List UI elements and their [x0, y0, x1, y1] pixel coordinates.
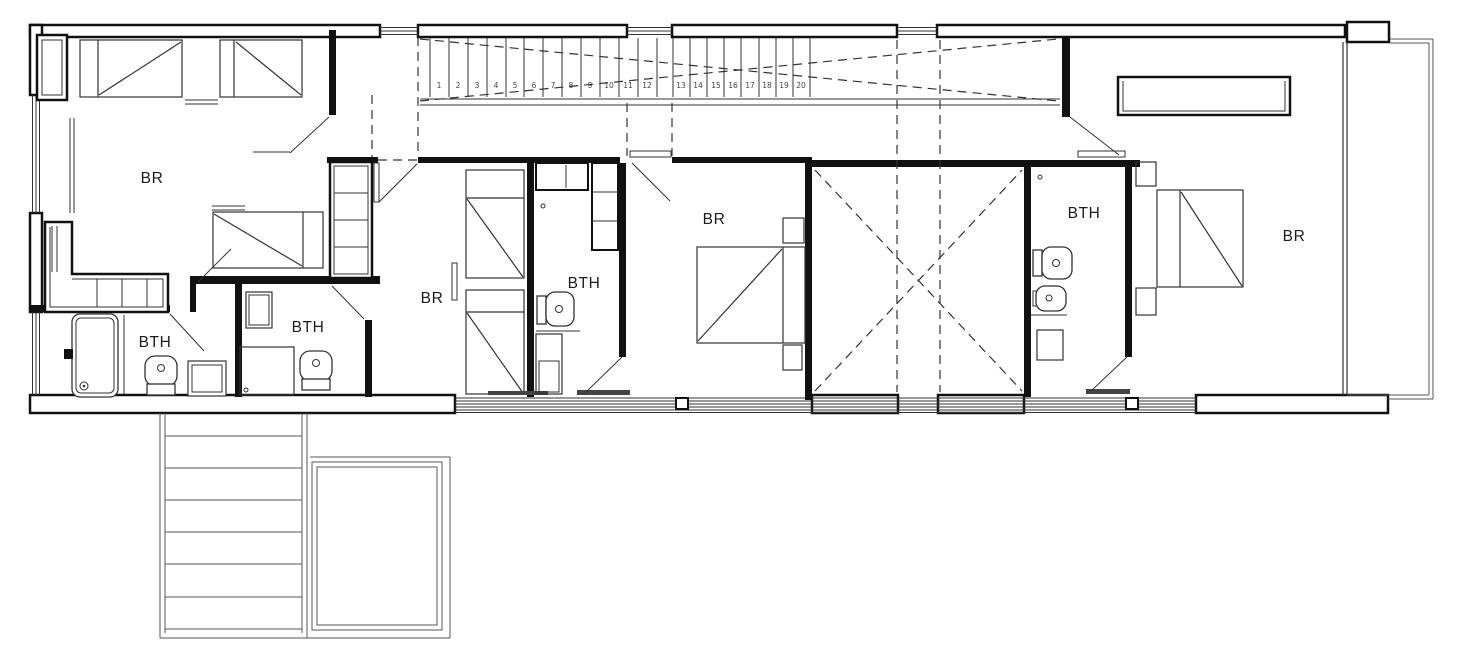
step-number: 13 [676, 81, 686, 90]
bidet-symbol [1033, 286, 1066, 311]
step-number: 7 [551, 81, 556, 90]
nightstand-symbol [1136, 288, 1156, 315]
door-leaf [374, 163, 457, 300]
toilet-symbol [300, 351, 332, 390]
room-bathroom-1: BTH [64, 314, 226, 397]
room-label-bathroom-2: BTH [292, 319, 325, 336]
step-number: 4 [494, 81, 499, 90]
step-number: 3 [475, 81, 480, 90]
step-number: 15 [711, 81, 721, 90]
desk-symbol [1118, 77, 1290, 115]
room-bedroom-3: BR [630, 151, 805, 370]
toilet-symbol [537, 292, 574, 326]
shelf-symbol [70, 100, 245, 213]
step-number: 12 [642, 81, 652, 90]
floor-plan-page: 1 2 3 4 5 6 7 8 9 10 11 12 13 14 15 16 1… [0, 0, 1466, 658]
step-number: 9 [588, 81, 593, 90]
step-number: 16 [728, 81, 738, 90]
bed-symbol [220, 40, 302, 97]
toilet-symbol [145, 356, 177, 395]
exterior-staircase [160, 413, 450, 638]
step-number: 1 [437, 81, 442, 90]
door-stop-dot [1038, 175, 1042, 179]
room-bathroom-2: BTH [240, 286, 364, 395]
sink-symbol [188, 361, 226, 396]
closet-symbol [330, 162, 372, 278]
door-swing [379, 164, 417, 202]
shower-symbol [536, 331, 580, 394]
step-number: 18 [762, 81, 772, 90]
door-swing [332, 286, 364, 319]
door-stop-dot [541, 204, 545, 208]
door-swing [1091, 356, 1128, 391]
room-label-bedroom-2: BR [421, 290, 444, 307]
closet-symbol [536, 163, 618, 250]
room-label-bedroom-1: BR [141, 170, 164, 187]
stair-step-numbers: 1 2 3 4 5 6 7 8 9 10 11 12 13 14 15 16 1… [437, 81, 806, 90]
door-swing [585, 357, 622, 393]
room-label-bathroom-4: BTH [1068, 205, 1101, 222]
balcony [1347, 39, 1433, 399]
room-label-bathroom-3: BTH [568, 275, 601, 292]
door-stop-dot [244, 388, 248, 392]
room-bathroom-3: BTH [536, 163, 630, 395]
nightstand-symbol [783, 345, 802, 370]
bed-symbol [1157, 190, 1243, 287]
room-bedroom-1: BR [37, 35, 329, 312]
room-label-bedroom-3: BR [703, 211, 726, 228]
door-sill [630, 151, 671, 157]
door-swing [198, 117, 329, 282]
step-number: 5 [513, 81, 518, 90]
step-number: 11 [623, 81, 633, 90]
bed-symbol [697, 247, 805, 343]
planter-symbol [312, 462, 442, 630]
shower-symbol [1037, 330, 1063, 360]
glass-wall [1343, 42, 1347, 395]
nightstand-symbol [783, 218, 804, 243]
door-swing [170, 314, 204, 351]
shower-symbol [240, 347, 294, 395]
bed-symbol [466, 290, 524, 394]
bed-symbol [213, 212, 323, 268]
door-swing [632, 163, 670, 201]
floor-plan-canvas: 1 2 3 4 5 6 7 8 9 10 11 12 13 14 15 16 1… [0, 0, 1466, 658]
step-number: 10 [604, 81, 614, 90]
room-bathroom-4: BTH [1031, 175, 1130, 394]
closet-symbol [37, 35, 67, 100]
wardrobe-symbol [45, 222, 168, 312]
door-swing [1070, 117, 1119, 155]
room-bedroom-2: BR [330, 162, 548, 395]
bed-symbol [80, 40, 182, 97]
bathtub-symbol [64, 314, 118, 397]
step-number: 19 [779, 81, 789, 90]
step-number: 2 [456, 81, 461, 90]
room-label-bathroom-1: BTH [139, 334, 172, 351]
step-number: 14 [693, 81, 703, 90]
step-number: 17 [745, 81, 755, 90]
exterior-stair-treads [165, 436, 302, 629]
toilet-symbol [1033, 247, 1072, 279]
step-number: 6 [532, 81, 537, 90]
room-bedroom-4: BR [1070, 77, 1305, 315]
room-label-bedroom-4: BR [1283, 228, 1306, 245]
sink-symbol [246, 292, 272, 328]
bed-symbol [466, 170, 524, 278]
step-number: 8 [569, 81, 574, 90]
step-number: 20 [796, 81, 806, 90]
